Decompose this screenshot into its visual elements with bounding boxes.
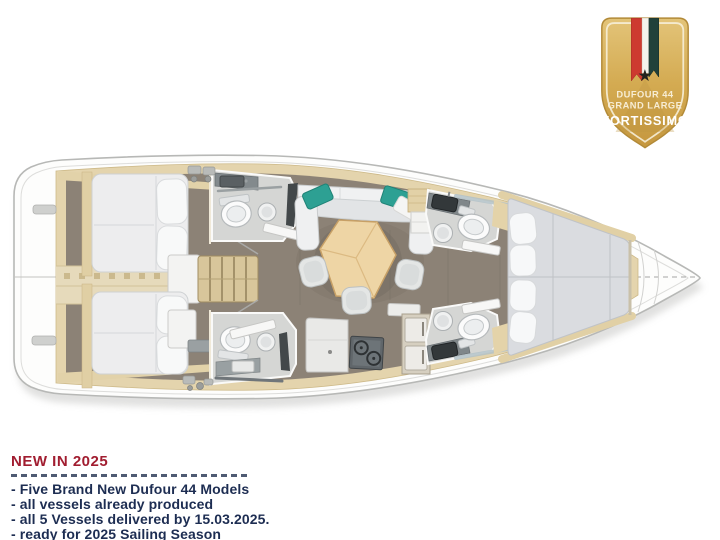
pillow	[508, 311, 537, 345]
stove	[349, 336, 384, 370]
island-counter	[306, 318, 348, 372]
pillow	[509, 212, 538, 246]
announcement-title: NEW IN 2025	[11, 454, 331, 470]
dufour-44-fortissimo-badge: ★ DUFOUR 44 GRAND LARGE FORTISSIMO	[592, 6, 698, 152]
wardrobe	[82, 284, 92, 388]
badge-line3: FORTISSIMO	[601, 113, 688, 128]
pillow	[509, 280, 536, 312]
stern-locker	[32, 336, 56, 345]
stern-locker	[33, 205, 56, 214]
star-icon: ★	[638, 66, 653, 85]
announcement-item: - all vessels already produced	[11, 497, 331, 512]
stool	[341, 286, 372, 315]
badge-line1: DUFOUR 44	[616, 90, 674, 100]
stool	[394, 258, 426, 291]
pillow	[509, 245, 536, 277]
aft-head-starboard	[212, 313, 296, 384]
announcement-item: - Five Brand New Dufour 44 Models	[11, 482, 331, 497]
announcement-item: - ready for 2025 Sailing Season	[11, 527, 331, 540]
sink	[220, 176, 244, 187]
aft-head-port	[212, 170, 304, 241]
page: ★ DUFOUR 44 GRAND LARGE FORTISSIMO NEW I…	[0, 0, 720, 540]
badge-line2: GRAND LARGE	[608, 100, 683, 110]
pillow	[156, 178, 188, 224]
wardrobe	[82, 172, 92, 276]
announcement-block: NEW IN 2025 - Five Brand New Dufour 44 M…	[11, 454, 331, 540]
dashed-divider	[11, 474, 248, 477]
sink	[232, 361, 254, 372]
announcement-item: - all 5 Vessels delivered by 15.03.2025.	[11, 512, 331, 527]
